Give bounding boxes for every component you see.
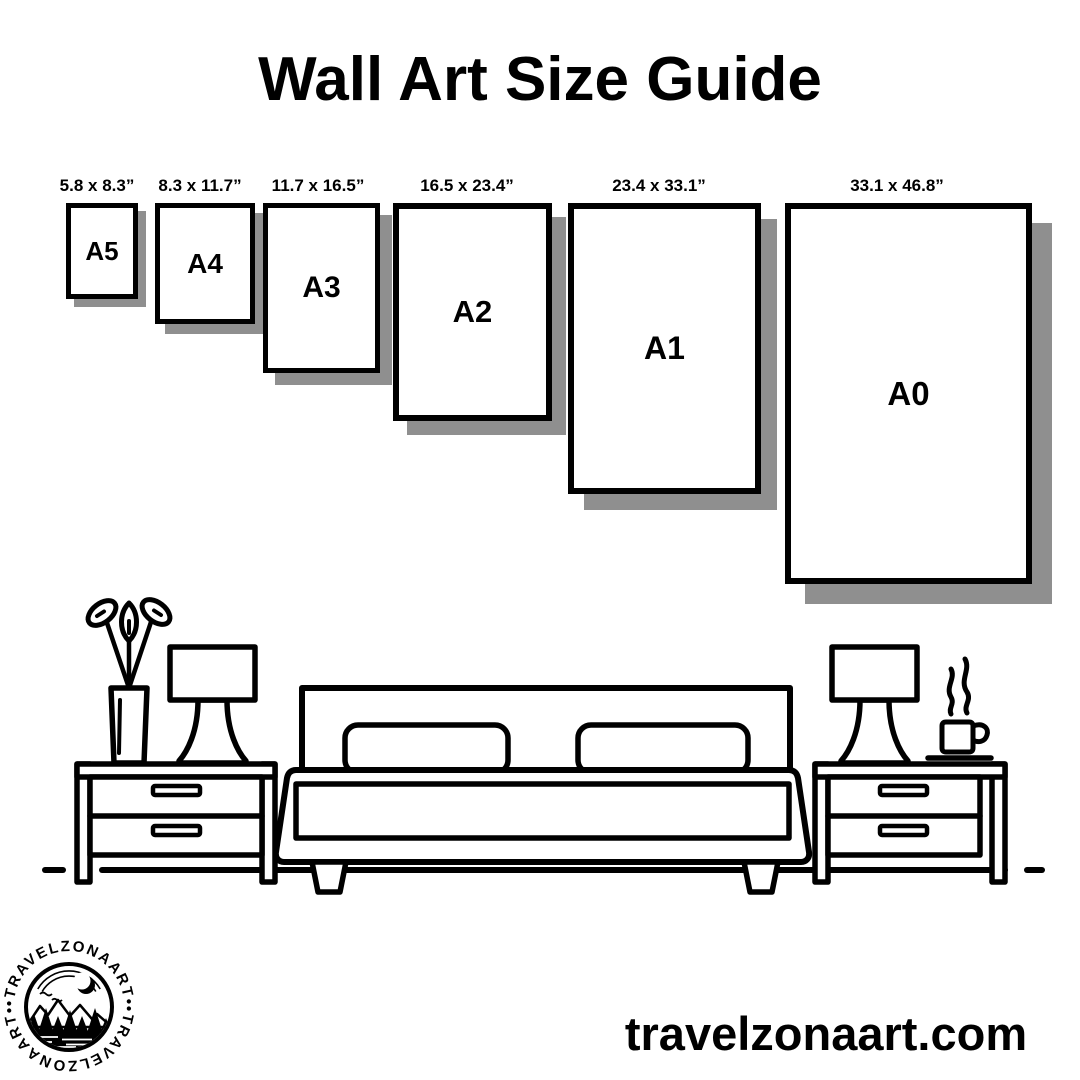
vase — [111, 688, 147, 763]
size-dimensions-label: 5.8 x 8.3” — [60, 176, 135, 196]
website-url: travelzonaart.com — [625, 1006, 1027, 1061]
drawer-handle — [153, 826, 200, 835]
steam-icon — [949, 669, 952, 714]
size-code-label: A1 — [644, 330, 685, 367]
brand-logo: •TRAVELZONAART• •TRAVELZONAART• — [0, 931, 144, 1080]
bed-leg — [312, 862, 346, 892]
coffee-cup — [928, 659, 991, 758]
bedroom-illustration — [40, 595, 1050, 905]
nightstand-left — [77, 764, 275, 882]
size-code-label: A4 — [187, 248, 223, 280]
size-dimensions-label: 11.7 x 16.5” — [272, 176, 365, 196]
size-box: A3 — [263, 203, 380, 373]
nightstand-right — [815, 764, 1005, 882]
size-box: A2 — [393, 203, 552, 421]
drawer-handle — [153, 786, 200, 795]
bed — [276, 688, 809, 892]
pillow-left — [345, 725, 508, 773]
page-title: Wall Art Size Guide — [258, 44, 822, 115]
drawer-handle — [880, 826, 927, 835]
lamp-shade — [170, 647, 255, 700]
size-code-label: A0 — [887, 375, 929, 413]
size-code-label: A2 — [453, 294, 493, 330]
size-box: A4 — [155, 203, 255, 324]
wall-art-size-guide-poster: Wall Art Size Guide 5.8 x 8.3” A5 8.3 x … — [0, 0, 1080, 1080]
size-box: A5 — [66, 203, 138, 299]
bed-front-panel — [296, 784, 789, 838]
potted-plant — [84, 595, 175, 763]
size-dimensions-label: 16.5 x 23.4” — [420, 176, 514, 196]
lamp-shade — [832, 647, 917, 700]
size-code-label: A5 — [85, 236, 118, 267]
bed-leg — [744, 862, 778, 892]
size-code-label: A3 — [302, 271, 340, 305]
table-lamp-left — [170, 647, 255, 763]
drawer-handle — [880, 786, 927, 795]
size-dimensions-label: 8.3 x 11.7” — [158, 176, 241, 196]
size-box: A0 — [785, 203, 1032, 584]
table-lamp-right — [832, 647, 917, 763]
size-dimensions-label: 33.1 x 46.8” — [850, 176, 944, 196]
pillow-right — [578, 725, 748, 773]
size-box: A1 — [568, 203, 761, 494]
size-dimensions-label: 23.4 x 33.1” — [612, 176, 706, 196]
steam-icon — [964, 659, 968, 713]
